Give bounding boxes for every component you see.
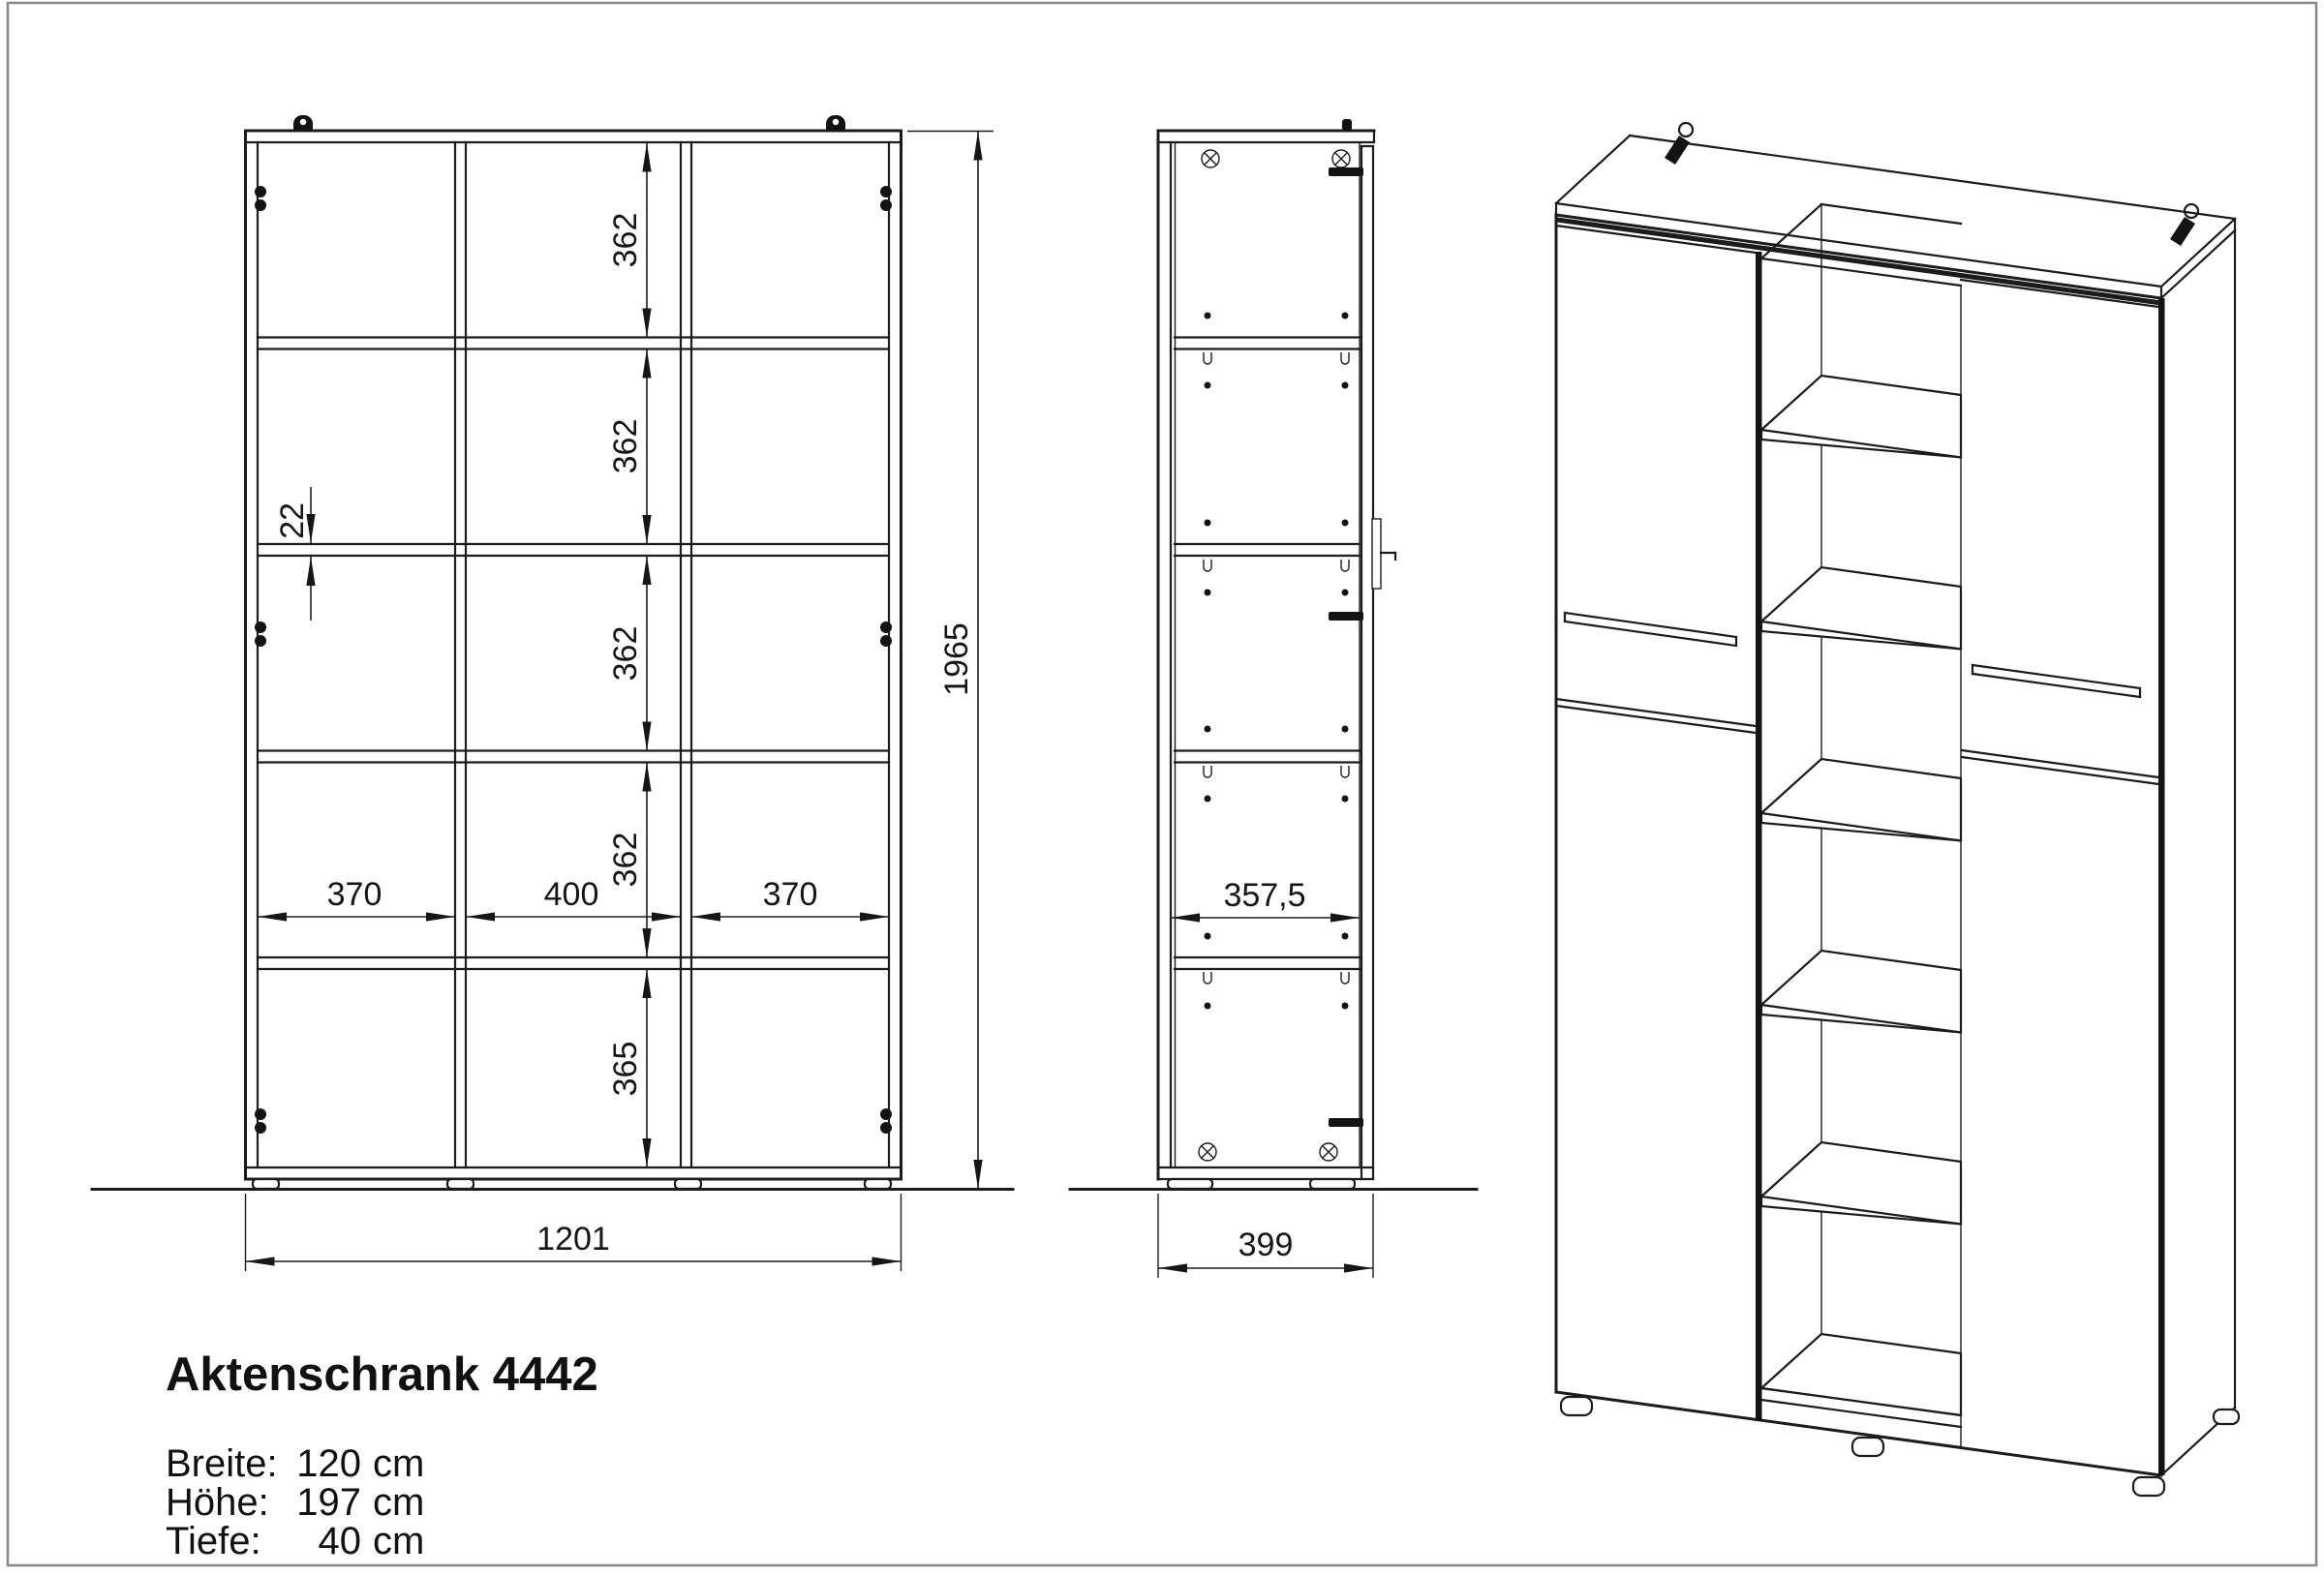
wall-bracket-icon [1665,123,2198,246]
persp-feet [1561,1397,2239,1496]
spec-label: Höhe: [166,1483,290,1522]
dim-cell-height-2: 362 [607,419,644,474]
spec-unit: cm [373,1483,424,1522]
persp-right-door-edge-shadow [2158,298,2165,1475]
spec-row-height: Höhe:197cm [166,1483,598,1522]
dim-cell-height-1: 362 [607,213,644,268]
spec-value: 40 [290,1522,361,1561]
spec-label: Breite: [166,1444,290,1483]
door-handle [1565,613,1736,646]
spec-label: Tiefe: [166,1522,290,1561]
wall-bracket-icon [1342,119,1352,131]
technical-drawing-page: 362 362 362 362 365 22 370 400 370 1201 … [0,0,2324,1576]
persp-top-shadow [1557,220,2161,303]
side-dimensions: 357,5 399 [1158,877,1373,1278]
dim-panel-thickness: 22 [274,502,311,539]
front-dimensions: 362 362 362 362 365 22 370 400 370 1201 … [246,132,994,1272]
dim-overall-height: 1965 [938,622,975,696]
persp-open-shelf-column [1761,204,1961,1447]
door-handle-side [1372,519,1395,589]
dim-interior-depth: 357,5 [1223,877,1305,914]
spec-row-width: Breite:120cm [166,1444,598,1483]
perspective-view [1556,123,2239,1496]
sheet-frame [8,3,2316,1565]
persp-left-door-edge-shadow [1756,252,1762,1421]
dim-cell-height-4: 362 [607,833,644,888]
spec-unit: cm [373,1522,424,1561]
spec-row-depth: Tiefe:40cm [166,1522,598,1561]
side-view [1070,119,1477,1190]
front-hinges [255,186,892,1134]
dim-cell-height-3: 362 [607,626,644,682]
persp-shelves [1761,376,1961,1224]
persp-right-door [1961,280,2165,1475]
dim-cell-width-1: 370 [327,876,382,913]
persp-left-door [1556,226,1762,1421]
spec-unit: cm [373,1444,424,1483]
side-feet [1168,1179,1355,1189]
front-carcass [246,131,902,1179]
dim-overall-width: 1201 [536,1221,610,1258]
spec-value: 197 [290,1483,361,1522]
side-fittings [1199,119,1395,1161]
screw-icon [1199,150,1350,1161]
wall-bracket-icon [293,115,845,131]
dim-overall-depth: 399 [1238,1227,1294,1263]
persp-top-slab [1556,136,2235,298]
side-carcass [1158,131,1374,1179]
drawing-canvas: 362 362 362 362 365 22 370 400 370 1201 … [0,0,2324,1576]
spec-value: 120 [290,1444,361,1483]
front-view [92,115,1013,1190]
dim-cell-width-3: 370 [763,876,818,913]
dim-cell-width-2: 400 [544,876,599,913]
product-title: Aktenschrank 4442 [166,1348,598,1402]
door-handle [1972,665,2140,697]
caption-block: Aktenschrank 4442 Breite:120cm Höhe:197c… [166,1348,598,1561]
dim-bottom-cell-height: 365 [607,1042,644,1097]
